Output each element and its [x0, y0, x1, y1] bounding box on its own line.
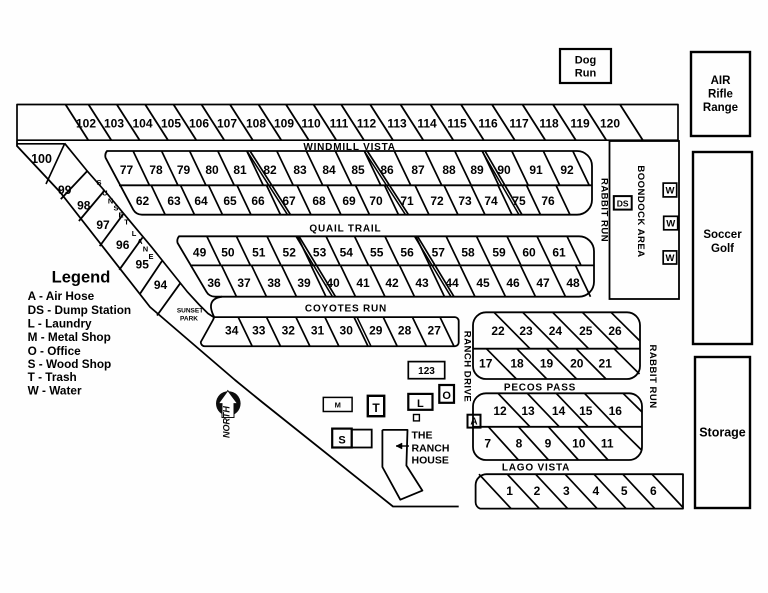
svg-text:61: 61: [552, 246, 566, 260]
svg-text:12: 12: [493, 404, 507, 418]
svg-text:LAGO VISTA: LAGO VISTA: [502, 463, 570, 474]
svg-text:10: 10: [572, 437, 586, 451]
svg-text:W: W: [666, 219, 675, 230]
svg-text:WINDMILL VISTA: WINDMILL VISTA: [303, 142, 396, 153]
svg-text:97: 97: [96, 218, 110, 232]
svg-text:W - Water: W - Water: [28, 383, 82, 397]
svg-text:105: 105: [161, 116, 181, 130]
svg-text:44: 44: [445, 276, 459, 290]
svg-text:L: L: [132, 229, 137, 238]
svg-text:U: U: [102, 189, 107, 198]
svg-text:80: 80: [205, 163, 219, 177]
svg-text:119: 119: [570, 116, 590, 130]
svg-text:45: 45: [476, 276, 490, 290]
svg-text:19: 19: [540, 357, 554, 371]
svg-text:BOONDOCK AREA: BOONDOCK AREA: [635, 165, 646, 257]
svg-text:S: S: [338, 435, 345, 447]
svg-text:98: 98: [77, 199, 91, 213]
svg-text:Storage: Storage: [699, 426, 746, 440]
svg-text:T: T: [124, 218, 129, 227]
svg-text:7: 7: [484, 437, 491, 451]
svg-text:11: 11: [601, 437, 614, 451]
svg-text:41: 41: [356, 276, 370, 290]
svg-text:56: 56: [400, 246, 414, 260]
svg-text:65: 65: [223, 194, 237, 208]
svg-text:94: 94: [154, 278, 168, 292]
svg-text:79: 79: [177, 163, 191, 177]
svg-text:29: 29: [369, 324, 383, 338]
svg-text:PECOS PASS: PECOS PASS: [504, 383, 576, 394]
svg-text:110: 110: [301, 116, 321, 130]
svg-text:49: 49: [193, 246, 207, 260]
svg-text:18: 18: [510, 357, 524, 371]
svg-text:104: 104: [132, 116, 152, 130]
svg-text:43: 43: [415, 276, 429, 290]
svg-text:26: 26: [608, 324, 622, 338]
svg-text:8: 8: [516, 437, 523, 451]
svg-text:74: 74: [484, 194, 498, 208]
svg-text:88: 88: [442, 163, 456, 177]
svg-text:15: 15: [579, 404, 593, 418]
svg-text:99: 99: [58, 183, 72, 197]
svg-text:Rifle: Rifle: [708, 89, 733, 101]
svg-text:23: 23: [519, 324, 533, 338]
svg-text:O - Office: O - Office: [28, 344, 82, 358]
svg-text:62: 62: [136, 194, 150, 208]
svg-text:113: 113: [387, 116, 407, 130]
svg-text:58: 58: [461, 246, 475, 260]
svg-text:68: 68: [312, 194, 326, 208]
svg-text:85: 85: [351, 163, 365, 177]
svg-text:100: 100: [31, 152, 52, 166]
svg-text:25: 25: [579, 324, 593, 338]
svg-text:RABBIT RUN: RABBIT RUN: [647, 344, 658, 408]
svg-text:L: L: [417, 398, 424, 410]
svg-text:31: 31: [311, 324, 325, 338]
svg-text:6: 6: [650, 484, 657, 498]
svg-text:22: 22: [491, 324, 505, 338]
svg-text:120: 120: [600, 116, 620, 130]
svg-text:77: 77: [120, 163, 134, 177]
svg-text:53: 53: [313, 246, 327, 260]
svg-text:95: 95: [136, 258, 150, 272]
svg-text:39: 39: [297, 276, 311, 290]
svg-text:123: 123: [418, 366, 435, 377]
svg-text:E: E: [148, 252, 153, 261]
svg-text:87: 87: [411, 163, 425, 177]
svg-text:108: 108: [246, 116, 266, 130]
svg-text:72: 72: [430, 194, 444, 208]
svg-text:40: 40: [326, 276, 340, 290]
svg-text:91: 91: [529, 163, 543, 177]
svg-text:47: 47: [536, 276, 550, 290]
svg-text:N: N: [108, 197, 113, 206]
svg-text:21: 21: [599, 357, 613, 371]
svg-text:RABBIT RUN: RABBIT RUN: [599, 178, 610, 242]
svg-text:89: 89: [470, 163, 484, 177]
svg-text:34: 34: [225, 324, 239, 338]
svg-text:4: 4: [593, 484, 600, 498]
svg-text:Range: Range: [703, 102, 738, 114]
svg-text:QUAIL TRAIL: QUAIL TRAIL: [309, 224, 381, 235]
svg-text:13: 13: [521, 404, 535, 418]
svg-text:27: 27: [428, 324, 442, 338]
svg-text:Legend: Legend: [52, 269, 111, 287]
svg-text:107: 107: [217, 116, 237, 130]
svg-text:33: 33: [252, 324, 266, 338]
svg-text:A - Air Hose: A - Air Hose: [28, 289, 95, 303]
svg-text:117: 117: [509, 116, 529, 130]
svg-text:103: 103: [104, 116, 124, 130]
svg-text:E: E: [118, 211, 123, 220]
svg-text:SUNSET: SUNSET: [177, 308, 203, 315]
svg-text:63: 63: [167, 194, 181, 208]
svg-text:46: 46: [506, 276, 520, 290]
svg-text:HOUSE: HOUSE: [412, 455, 449, 467]
svg-text:38: 38: [267, 276, 281, 290]
svg-text:N: N: [143, 245, 148, 254]
svg-text:NORTH: NORTH: [222, 406, 232, 438]
svg-text:102: 102: [76, 116, 96, 130]
svg-text:115: 115: [447, 116, 467, 130]
svg-text:3: 3: [563, 484, 570, 498]
svg-text:AIR: AIR: [711, 75, 732, 87]
svg-text:17: 17: [479, 357, 493, 371]
svg-text:54: 54: [340, 246, 354, 260]
svg-text:111: 111: [330, 116, 349, 130]
svg-text:37: 37: [237, 276, 251, 290]
svg-text:Run: Run: [575, 68, 597, 80]
svg-text:42: 42: [385, 276, 399, 290]
svg-text:W: W: [666, 186, 675, 197]
svg-text:Soccer: Soccer: [703, 229, 742, 241]
svg-text:2: 2: [534, 484, 541, 498]
svg-text:DS: DS: [617, 199, 629, 209]
svg-text:S: S: [96, 178, 101, 187]
svg-text:76: 76: [541, 194, 555, 208]
svg-text:64: 64: [194, 194, 208, 208]
svg-text:Dog: Dog: [575, 55, 596, 67]
svg-text:Golf: Golf: [711, 243, 734, 255]
svg-text:51: 51: [252, 246, 266, 260]
svg-text:116: 116: [478, 116, 498, 130]
svg-text:PARK: PARK: [180, 316, 198, 323]
svg-text:59: 59: [492, 246, 506, 260]
svg-text:70: 70: [369, 194, 383, 208]
svg-text:73: 73: [458, 194, 472, 208]
svg-text:114: 114: [417, 116, 437, 130]
svg-text:9: 9: [545, 437, 552, 451]
svg-text:52: 52: [283, 246, 297, 260]
svg-text:1: 1: [506, 484, 513, 498]
svg-text:S - Wood Shop: S - Wood Shop: [28, 357, 112, 371]
svg-text:50: 50: [221, 246, 235, 260]
svg-text:112: 112: [357, 116, 377, 130]
svg-text:69: 69: [342, 194, 356, 208]
svg-text:36: 36: [207, 276, 221, 290]
svg-text:66: 66: [251, 194, 265, 208]
svg-text:T - Trash: T - Trash: [28, 370, 77, 384]
svg-text:20: 20: [570, 357, 584, 371]
svg-text:T: T: [372, 401, 380, 415]
svg-text:A: A: [470, 417, 477, 428]
svg-text:28: 28: [398, 324, 412, 338]
svg-text:W: W: [666, 253, 675, 264]
svg-text:M - Metal Shop: M - Metal Shop: [28, 330, 111, 344]
svg-text:106: 106: [189, 116, 209, 130]
svg-text:55: 55: [370, 246, 384, 260]
svg-text:5: 5: [621, 484, 628, 498]
svg-text:81: 81: [233, 163, 247, 177]
svg-text:92: 92: [560, 163, 574, 177]
svg-text:78: 78: [149, 163, 163, 177]
svg-text:COYOTES RUN: COYOTES RUN: [305, 304, 387, 315]
svg-text:109: 109: [274, 116, 294, 130]
svg-text:30: 30: [340, 324, 354, 338]
svg-text:DS - Dump Station: DS - Dump Station: [28, 303, 132, 317]
svg-text:THE: THE: [412, 429, 433, 441]
svg-text:O: O: [442, 390, 451, 402]
svg-text:96: 96: [116, 238, 130, 252]
svg-text:14: 14: [552, 404, 566, 418]
svg-text:60: 60: [522, 246, 536, 260]
svg-text:M: M: [335, 401, 341, 410]
svg-text:57: 57: [432, 246, 446, 260]
svg-text:83: 83: [293, 163, 307, 177]
svg-text:118: 118: [539, 116, 559, 130]
svg-text:16: 16: [609, 404, 623, 418]
svg-text:RANCH DRIVE: RANCH DRIVE: [462, 331, 473, 402]
svg-text:48: 48: [566, 276, 580, 290]
svg-text:32: 32: [282, 324, 296, 338]
svg-text:RANCH: RANCH: [412, 442, 450, 454]
svg-text:24: 24: [549, 324, 563, 338]
svg-text:L - Laundry: L - Laundry: [28, 316, 92, 330]
svg-text:84: 84: [322, 163, 336, 177]
